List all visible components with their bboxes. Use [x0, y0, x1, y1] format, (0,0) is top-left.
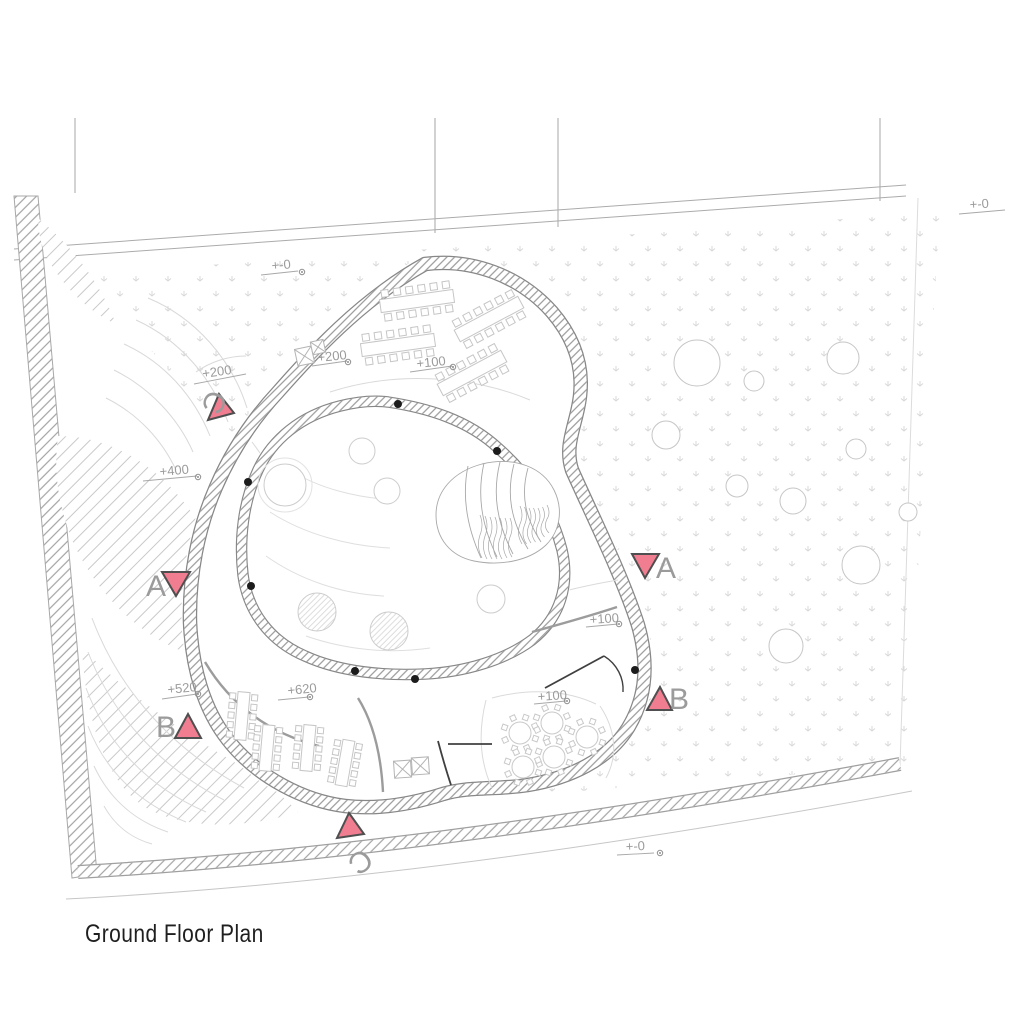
- tree: [827, 342, 859, 374]
- elevation-label: +100: [534, 687, 570, 704]
- svg-text:+100: +100: [537, 687, 567, 704]
- tree: [846, 439, 866, 459]
- dining-table: [292, 724, 324, 772]
- elevation-label: +-0: [959, 196, 1005, 214]
- tree: [842, 546, 880, 584]
- tree: [780, 488, 806, 514]
- svg-text:+520: +520: [167, 679, 198, 697]
- column-dot: [351, 667, 359, 675]
- column-dot: [631, 666, 639, 674]
- column-dot: [411, 675, 419, 683]
- svg-text:B: B: [156, 711, 176, 744]
- svg-text:+100: +100: [416, 353, 447, 371]
- courtyard-tree: [370, 612, 408, 650]
- tree: [744, 371, 764, 391]
- tree: [726, 475, 748, 497]
- svg-text:+-0: +-0: [625, 838, 645, 854]
- svg-text:+400: +400: [159, 461, 189, 478]
- svg-text:+-0: +-0: [969, 196, 989, 212]
- floor-plan-canvas: +200+200+100+400+520+620+100+100+-0+-0+-…: [0, 0, 1029, 1035]
- column-dot: [244, 478, 252, 486]
- floor-plan-drawing: +200+200+100+400+520+620+100+100+-0+-0+-…: [0, 0, 1029, 1035]
- svg-text:+100: +100: [589, 610, 619, 627]
- tree: [674, 340, 720, 386]
- tree: [769, 629, 803, 663]
- courtyard-tree: [477, 585, 505, 613]
- elevation-label: +100: [586, 610, 622, 627]
- svg-text:A: A: [146, 570, 166, 603]
- drawing-title: Ground Floor Plan: [85, 920, 264, 949]
- courtyard-tree: [298, 593, 336, 631]
- elevation-label: +-0: [617, 838, 663, 856]
- column-dot: [394, 400, 402, 408]
- courtyard-tree: [349, 438, 375, 464]
- svg-text:+620: +620: [287, 680, 318, 698]
- column-dot: [247, 582, 255, 590]
- tree: [652, 421, 680, 449]
- dining-table: [226, 691, 258, 741]
- courtyard-tree: [264, 464, 306, 506]
- dining-table: [251, 724, 283, 772]
- svg-text:+200: +200: [317, 347, 348, 365]
- svg-text:+-0: +-0: [271, 256, 291, 273]
- tree: [899, 503, 917, 521]
- svg-text:A: A: [656, 552, 676, 585]
- svg-text:B: B: [669, 683, 689, 716]
- courtyard-tree: [374, 478, 400, 504]
- column-dot: [493, 447, 501, 455]
